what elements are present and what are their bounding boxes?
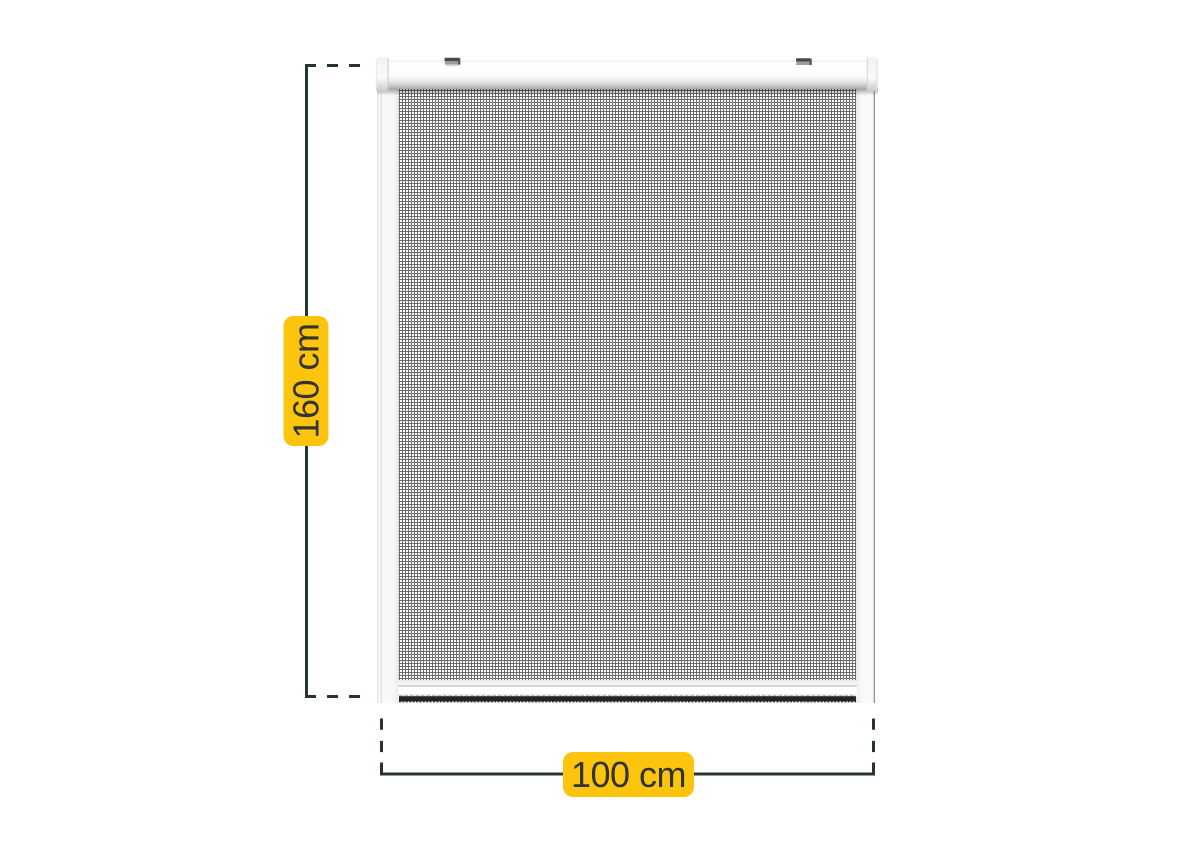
svg-text:100 cm: 100 cm: [571, 754, 686, 795]
svg-text:160 cm: 160 cm: [286, 323, 327, 438]
